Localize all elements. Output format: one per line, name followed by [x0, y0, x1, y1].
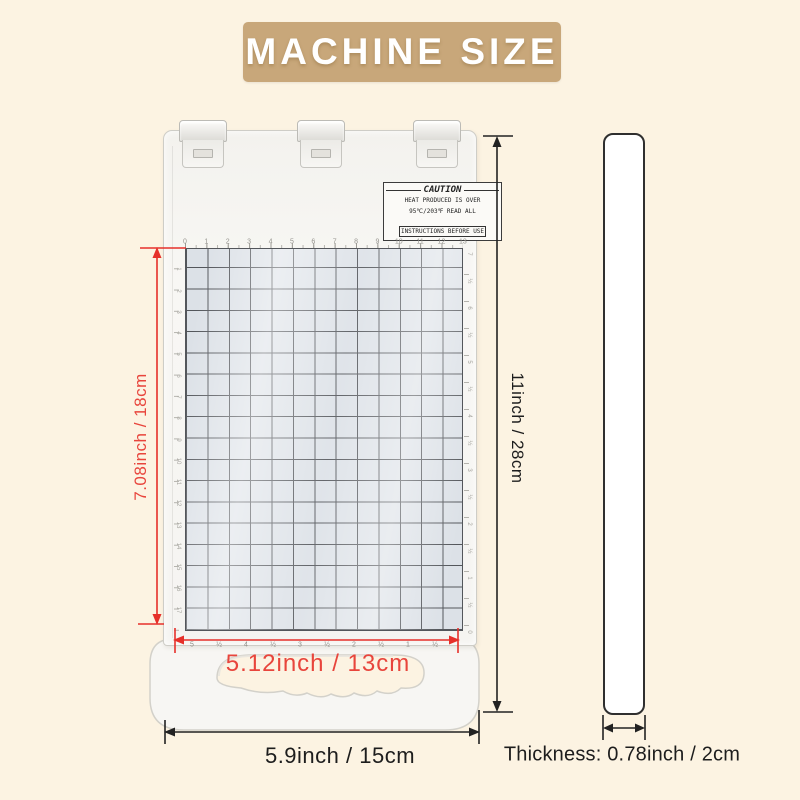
dim-thickness — [603, 715, 645, 740]
ruler-mark: 3 — [298, 642, 302, 649]
hinge-tab — [416, 140, 458, 168]
trimmer-side-view — [603, 133, 645, 715]
hinge-center — [297, 120, 345, 174]
hinge-left — [179, 120, 227, 174]
caution-title: CAUTION — [386, 185, 499, 195]
banner-title: MACHINE SIZE — [245, 31, 558, 73]
hinge-cap — [297, 120, 345, 142]
ruler-mark: 1 — [406, 642, 410, 649]
caution-label: CAUTION HEAT PRODUCED IS OVER 95℃/203℉ R… — [383, 182, 502, 241]
page: { "banner": { "label": "MACHINE SIZE", "… — [0, 0, 800, 800]
ruler-mark: ½ — [270, 642, 276, 649]
hinge-right — [413, 120, 461, 174]
machine-size-banner: MACHINE SIZE — [243, 22, 561, 82]
caution-line-2: 95℃/203℉ READ ALL — [386, 206, 499, 217]
ruler-mark: ½ — [432, 642, 438, 649]
hinge-slot — [311, 149, 331, 158]
ruler-mark: 2 — [352, 642, 356, 649]
hinge-cap — [179, 120, 227, 142]
ruler-mark: ½ — [324, 642, 330, 649]
ruler-mark: 5 — [190, 642, 194, 649]
ruler-mark: ½ — [216, 642, 222, 649]
lid-seam — [172, 146, 173, 638]
ruler-left-ticks — [174, 248, 179, 631]
hinge-slot — [193, 149, 213, 158]
hinge-cap — [413, 120, 461, 142]
label-machine-height: 11inch / 28cm — [507, 372, 527, 483]
label-grid-width: 5.12inch / 13cm — [226, 650, 410, 678]
ruler-mark: ½ — [378, 642, 384, 649]
hinge-slot — [427, 149, 447, 158]
ruler-mark: 4 — [244, 642, 248, 649]
caution-line-3: INSTRUCTIONS BEFORE USE — [399, 226, 486, 237]
dim-machine-width — [164, 710, 480, 744]
measuring-grid — [185, 248, 463, 631]
ruler-right-inch: 7½6½5½4½3½2½1½0 — [469, 248, 475, 631]
caution-line-1: HEAT PRODUCED IS OVER — [386, 195, 499, 206]
label-grid-height: 7.08inch / 18cm — [131, 373, 151, 501]
ruler-right-ticks — [464, 248, 469, 631]
label-machine-width: 5.9inch / 15cm — [265, 743, 415, 769]
hinge-tab — [300, 140, 342, 168]
label-thickness: Thickness: 0.78inch / 2cm — [504, 744, 740, 767]
hinge-tab — [182, 140, 224, 168]
